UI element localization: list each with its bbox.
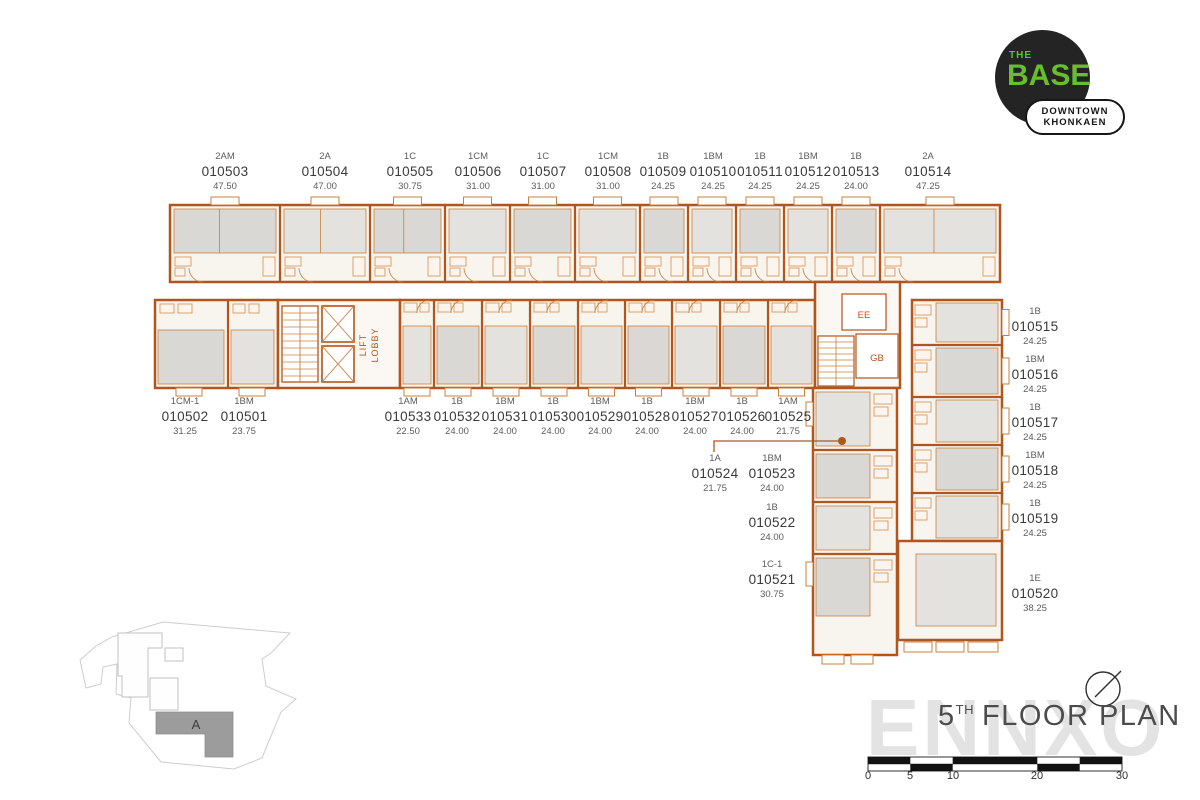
unit-type: 1BM [990,449,1080,462]
unit-label-010519: 1B01051924.25 [990,497,1080,540]
unit-number: 010501 [199,408,289,425]
floor-plan-title: 5THFLOOR PLAN [938,700,1181,733]
unit-type: 2AM [180,150,270,163]
unit-area: 24.25 [990,527,1080,540]
unit-type: 1B [990,497,1080,510]
unit-area: 47.25 [883,180,973,193]
unit-label-010523: 1BM01052324.00 [727,452,817,495]
unit-area: 24.25 [990,431,1080,444]
scale-tick-label: 10 [941,770,965,782]
floor-ordinal: TH [956,702,974,717]
unit-number: 010517 [990,414,1080,431]
unit-type: 1C-1 [727,558,817,571]
unit-number: 010504 [280,163,370,180]
unit-type: 1BM [727,452,817,465]
unit-number: 010515 [990,318,1080,335]
floor-title-text: FLOOR PLAN [982,700,1181,732]
unit-label-010517: 1B01051724.25 [990,401,1080,444]
scale-tick-label: 20 [1025,770,1049,782]
unit-area: 24.25 [990,335,1080,348]
logo-base-text: BASE [1007,59,1090,93]
scale-tick-label: 30 [1110,770,1134,782]
unit-label-010518: 1BM01051824.25 [990,449,1080,492]
unit-label-010515: 1B01051524.25 [990,305,1080,348]
unit-area: 24.00 [727,482,817,495]
unit-area: 30.75 [727,588,817,601]
unit-type: 1AM [743,395,833,408]
unit-area: 47.00 [280,180,370,193]
unit-area: 24.00 [727,531,817,544]
unit-number: 010523 [727,465,817,482]
unit-label-010501: 1BM01050123.75 [199,395,289,438]
unit-type: 1BM [990,353,1080,366]
unit-type: 2A [280,150,370,163]
unit-area: 24.25 [990,383,1080,396]
the-base-logo: THE BASE DOWNTOWN KHONKAEN [995,30,1135,150]
floor-number: 5 [938,700,956,732]
unit-area: 38.25 [990,602,1080,615]
badge-line-khonkaen: KHONKAEN [1044,117,1107,128]
unit-type: 1B [990,401,1080,414]
unit-label-010520: 1E01052038.25 [990,572,1080,615]
unit-number: 010522 [727,514,817,531]
unit-label-010514: 2A01051447.25 [883,150,973,193]
unit-number: 010514 [883,163,973,180]
unit-label-010521: 1C-101052130.75 [727,558,817,601]
unit-number: 010525 [743,408,833,425]
scale-tick-label: 0 [856,770,880,782]
unit-label-010504: 2A01050447.00 [280,150,370,193]
unit-label-010503: 2AM01050347.50 [180,150,270,193]
unit-area: 24.25 [990,479,1080,492]
unit-label-010516: 1BM01051624.25 [990,353,1080,396]
unit-area: 21.75 [743,425,833,438]
logo-project-badge: DOWNTOWN KHONKAEN [1025,99,1125,135]
unit-number: 010518 [990,462,1080,479]
unit-type: 1E [990,572,1080,585]
unit-number: 010519 [990,510,1080,527]
unit-area: 47.50 [180,180,270,193]
unit-number: 010520 [990,585,1080,602]
unit-type: 1B [990,305,1080,318]
unit-number: 010516 [990,366,1080,383]
unit-type: 2A [883,150,973,163]
unit-label-010522: 1B01052224.00 [727,501,817,544]
unit-type: 1B [727,501,817,514]
unit-type: 1BM [199,395,289,408]
unit-number: 010521 [727,571,817,588]
scale-tick-label: 5 [898,770,922,782]
unit-label-010525: 1AM01052521.75 [743,395,833,438]
unit-area: 23.75 [199,425,289,438]
badge-line-downtown: DOWNTOWN [1042,106,1109,117]
unit-number: 010503 [180,163,270,180]
